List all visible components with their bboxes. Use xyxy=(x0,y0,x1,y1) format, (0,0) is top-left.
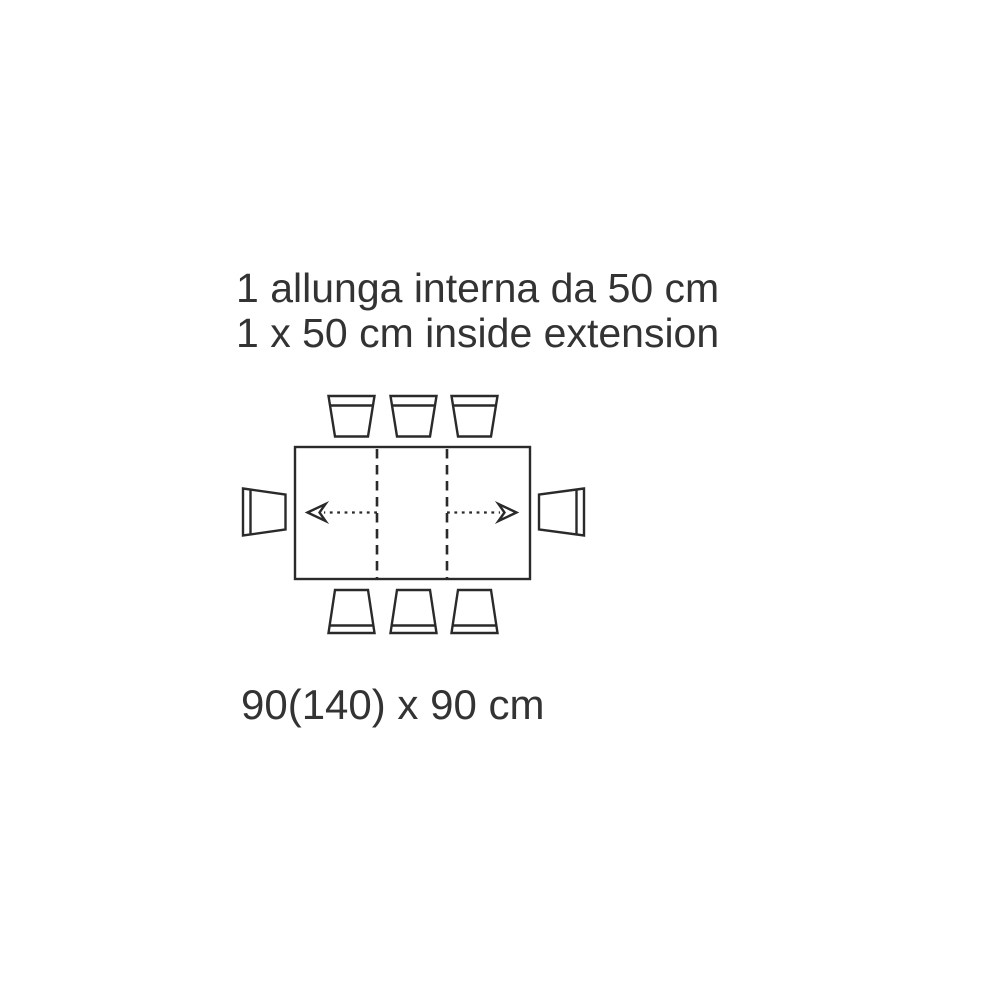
chair-bottom-3 xyxy=(452,590,498,633)
chair-top-3 xyxy=(452,396,498,437)
dimensions-label: 90(140) x 90 cm xyxy=(241,681,544,729)
chair-top-2 xyxy=(391,396,437,437)
chair-right xyxy=(539,489,584,536)
chair-bottom-2 xyxy=(391,590,437,633)
chair-bottom-1 xyxy=(329,590,375,633)
chair-left xyxy=(243,489,286,536)
table-top-view-figure xyxy=(0,0,1000,1000)
chair-top-1 xyxy=(329,396,375,437)
product-dimension-diagram: 1 allunga interna da 50 cm 1 x 50 cm ins… xyxy=(0,0,1000,1000)
